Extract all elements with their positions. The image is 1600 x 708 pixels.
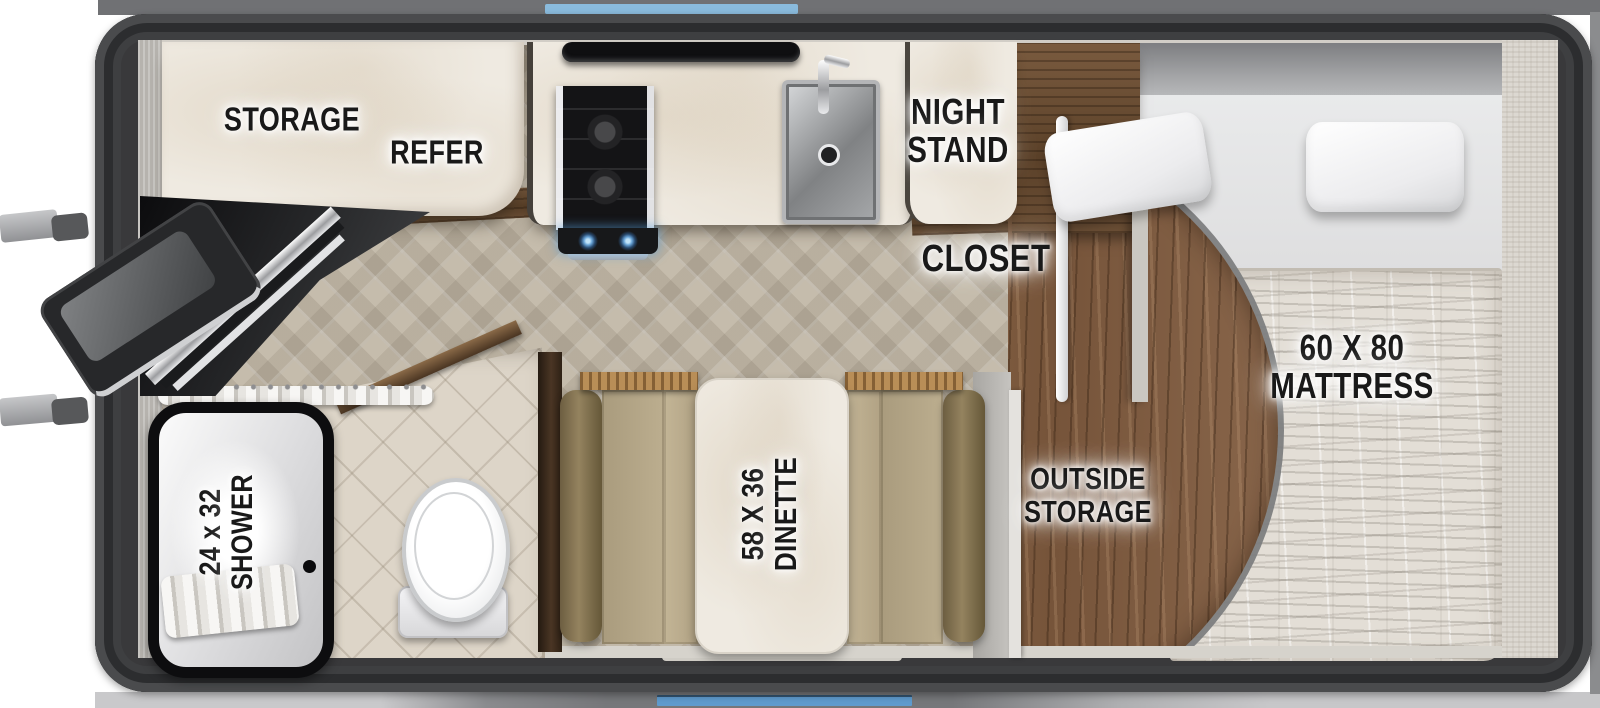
dinette-bench-left-seat	[664, 390, 698, 644]
door-hinge-top	[0, 209, 59, 243]
label-shower: 24 x 32SHOWER	[195, 474, 259, 590]
door-hinge-bottom-cap	[51, 396, 89, 425]
awning-accent-top	[545, 4, 798, 14]
cooktop	[556, 86, 654, 230]
label-dinette: 58 X 36DINETTE	[737, 457, 803, 571]
shower-door-handle	[303, 560, 316, 573]
dinette-bench-right-top	[845, 372, 963, 390]
door-hinge-top-cap	[51, 212, 90, 242]
dinette-bench-left-back	[602, 390, 664, 644]
label-storage: STORAGE	[224, 103, 360, 138]
closet-wall	[1132, 198, 1148, 402]
awning-accent-bottom	[657, 695, 912, 706]
exterior-top-band	[98, 0, 1600, 15]
label-closet: CLOSET	[922, 239, 1051, 279]
dinette-bench-right-back	[881, 390, 943, 644]
pillow-right	[1306, 122, 1464, 212]
dinette-wall-panel	[538, 352, 562, 652]
dinette-bench-right-seat	[847, 390, 881, 644]
dinette-bench-left-top	[580, 372, 698, 390]
label-outside-storage: OUTSIDESTORAGE	[1024, 463, 1152, 529]
toilet-lid-seam	[414, 492, 494, 600]
label-mattress: 60 X 80MATTRESS	[1270, 329, 1433, 405]
range-hood	[562, 42, 800, 62]
interior-wall-right	[1500, 40, 1558, 658]
dinette-bench-right-armrest	[943, 390, 985, 642]
dinette-bench-left-armrest	[560, 390, 602, 642]
faucet	[818, 60, 829, 114]
label-refer: REFER	[390, 136, 484, 171]
interior-wall-bottom	[545, 646, 1502, 658]
storage-door-edge	[1009, 390, 1021, 658]
sink-drain	[818, 144, 840, 166]
cooktop-knobs	[558, 228, 658, 254]
door-hinge-bottom	[0, 394, 59, 427]
label-night-stand: NIGHTSTAND	[907, 93, 1009, 169]
floorplan-canvas: STORAGE REFER NIGHTSTAND CLOSET 60 X 80M…	[0, 0, 1600, 708]
